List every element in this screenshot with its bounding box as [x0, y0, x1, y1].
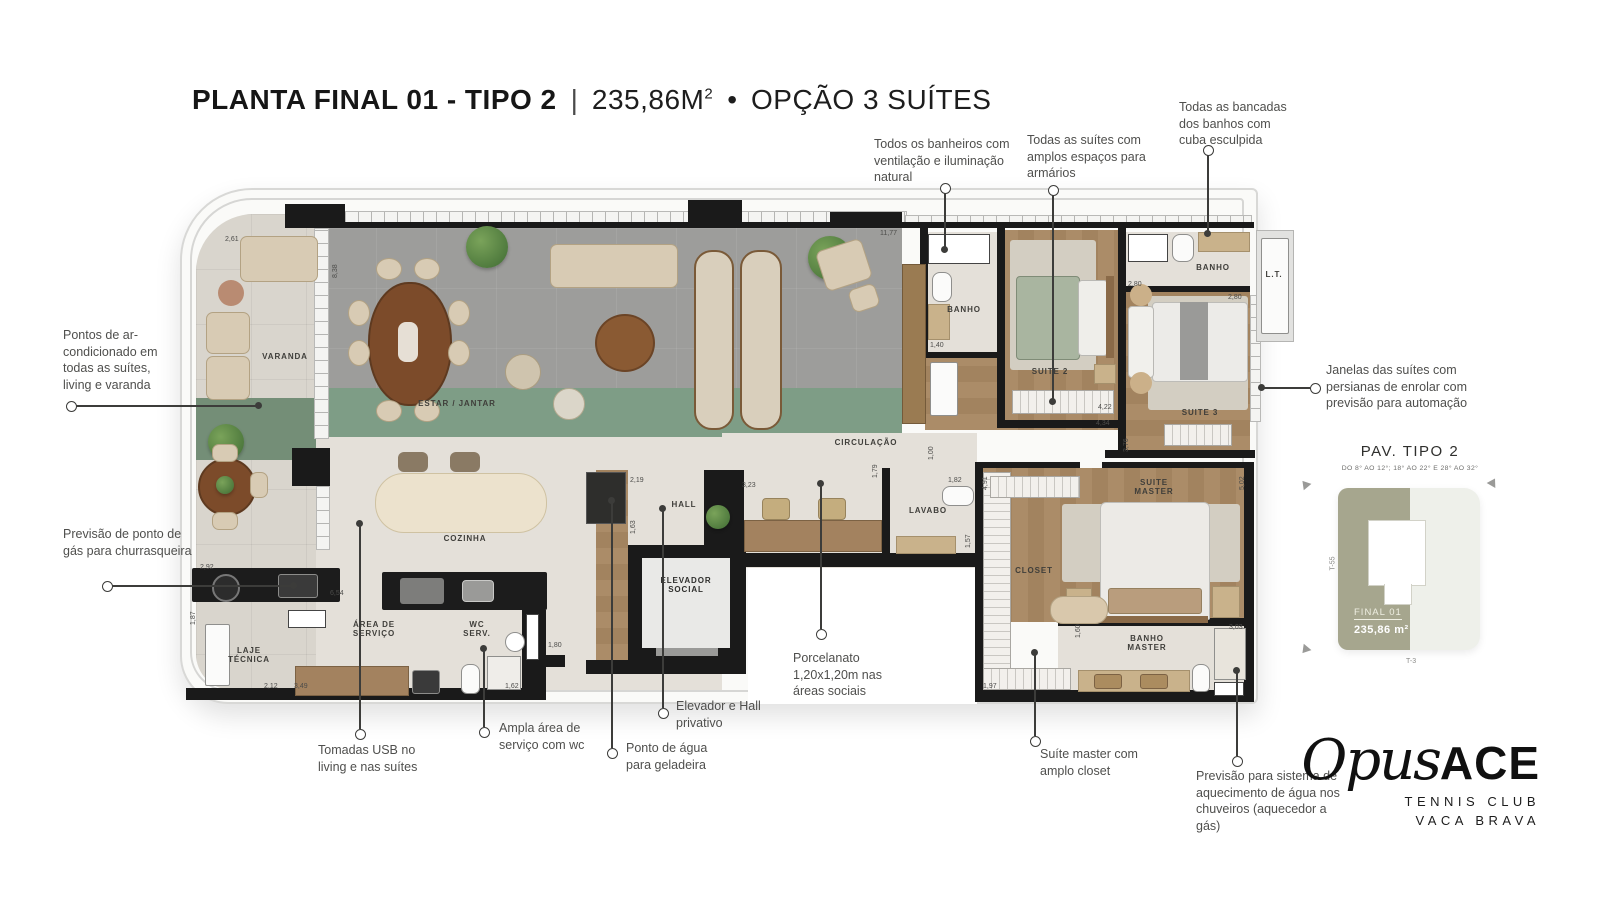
hall-plant	[706, 505, 730, 529]
living-round-table	[595, 314, 655, 372]
lavabo-counter	[896, 536, 956, 554]
corridor-bottom-wall	[744, 553, 977, 567]
leader-master	[1034, 652, 1036, 736]
leader-aquecimento-circle	[1232, 756, 1243, 767]
title-main: PLANTA FINAL 01 - TIPO 2	[192, 84, 557, 116]
living-pouf-1	[505, 354, 541, 390]
logo-opus: Opus	[1301, 728, 1440, 793]
top-wall	[316, 222, 1254, 228]
varanda-chair-n	[212, 444, 238, 462]
title-option: OPÇÃO 3 SUÍTES	[751, 84, 991, 116]
leader-suites-circle	[1048, 185, 1059, 196]
varanda-table-plant	[216, 476, 234, 494]
dimension-label: 1,63	[630, 520, 637, 534]
master-top-wall-a	[978, 462, 1080, 468]
banho-master-shower	[1214, 628, 1246, 680]
keyplan-final: FINAL 01	[1354, 607, 1402, 620]
label-suite2: SUITE 2	[1032, 367, 1069, 376]
leader-porcelanato-circle	[816, 629, 827, 640]
wall-chunk-1	[285, 204, 345, 228]
island-stool-2	[450, 452, 480, 472]
keyplan-axis-bottom: T-3	[1406, 658, 1416, 665]
annotation-usb: Tomadas USB no living e nas suítes	[318, 742, 436, 775]
leader-aquecimento	[1236, 670, 1238, 756]
label-lt: L.T.	[1266, 270, 1283, 279]
dimension-label: 1,79	[872, 464, 879, 478]
annotation-servico-wc: Ampla área de serviço com wc	[499, 720, 611, 753]
suite2-headboard	[1106, 276, 1114, 358]
laje-window	[288, 610, 326, 628]
keyplan-area: 235,86 m²	[1354, 624, 1409, 636]
dining-chair-6	[448, 340, 470, 366]
dimension-label: 8,38	[332, 264, 339, 278]
annotation-bancadas: Todas as bancadas dos banhos com cuba es…	[1179, 99, 1297, 149]
console-basket-2	[818, 498, 846, 520]
keyplan-title: PAV. TIPO 2	[1335, 443, 1485, 460]
dimension-label: 1,87	[190, 611, 197, 625]
banho2-bottom-wall	[920, 352, 1004, 358]
fridge	[586, 472, 626, 524]
lt-cabinet	[1261, 238, 1289, 334]
master-pillows	[1108, 588, 1202, 614]
dimension-label: 2,80	[1228, 294, 1242, 301]
service-bench	[295, 666, 409, 696]
leader-usb-circle	[355, 729, 366, 740]
banho3-shower	[1128, 234, 1168, 262]
kitchen-sink	[462, 580, 494, 602]
wc-window	[526, 614, 539, 660]
dimension-label: 4,34	[1096, 420, 1110, 427]
leader-aquecimento-dot	[1233, 667, 1240, 674]
leader-master-dot	[1031, 649, 1038, 656]
suite3-bench	[1164, 424, 1232, 446]
dining-chair-7	[376, 400, 402, 422]
console-basket-1	[762, 498, 790, 520]
leader-usb-dot	[356, 520, 363, 527]
dining-table-flowers	[398, 322, 418, 362]
sofa-module-1	[694, 250, 734, 430]
leader-banheiros	[944, 192, 946, 249]
varanda-chair-s	[212, 512, 238, 530]
cooktop	[400, 578, 444, 604]
slab-nub	[545, 655, 565, 667]
wall-chunk-4	[292, 448, 330, 486]
title-dot: •	[727, 84, 737, 116]
dimension-label: 1,80	[548, 642, 562, 649]
brand-logo: OpusACE TENNIS CLUB VACA BRAVA	[1300, 728, 1540, 831]
leader-servico-circle	[479, 727, 490, 738]
dining-chair-2	[414, 258, 440, 280]
banho-master-toilet	[1192, 664, 1210, 692]
leader-gas-dot	[290, 582, 297, 589]
label-estar-jantar: ESTAR / JANTAR	[418, 399, 496, 408]
leader-gas-circle	[102, 581, 113, 592]
leader-ac-circle	[66, 401, 77, 412]
leader-elevador-circle	[658, 708, 669, 719]
sofa-module-2	[740, 250, 782, 430]
leader-elevador	[662, 508, 664, 708]
logo-wordmark: OpusACE	[1300, 728, 1540, 793]
master-nightstand-2	[1212, 586, 1240, 618]
kitchen-island	[375, 473, 547, 533]
wall-chunk-2	[688, 200, 742, 228]
dimension-label: 3,49	[294, 683, 308, 690]
dimension-label: 1,97	[983, 683, 997, 690]
master-top-wall-b	[1102, 462, 1252, 468]
island-stool-1	[398, 452, 428, 472]
varanda-chair-e	[250, 472, 268, 498]
suite3-pouf-2	[1130, 372, 1152, 394]
dimension-label: 2,19	[630, 477, 644, 484]
varanda-armchair-2	[206, 356, 250, 400]
leader-elevador-dot	[659, 505, 666, 512]
dimension-label: 2,92	[200, 564, 214, 571]
living-pouf-2	[553, 388, 585, 420]
logo-vaca-brava: VACA BRAVA	[1416, 813, 1540, 828]
label-banho-suite2: BANHO	[947, 305, 981, 314]
keyplan-compass-icon	[1299, 478, 1312, 491]
dimension-label: 2,80	[1128, 281, 1142, 288]
dimension-label: 1,82	[948, 477, 962, 484]
leader-bancadas-dot	[1204, 230, 1211, 237]
annotation-porcelanato: Porcelanato 1,20x1,20m nas áreas sociais	[793, 650, 909, 700]
varanda-kitchen-window	[316, 486, 330, 550]
dimension-label: 4,91	[982, 476, 989, 490]
elevator-cab	[642, 558, 730, 648]
lavabo-toilet	[942, 486, 974, 506]
dining-chair-1	[376, 258, 402, 280]
keyplan-subtitle: DO 8° AO 12°; 18° AO 22° E 28° AO 32°	[1305, 465, 1515, 472]
label-banho-master: BANHO MASTER	[1122, 634, 1172, 652]
varanda-armchair-1	[206, 312, 250, 354]
banho-master-sink-2	[1140, 674, 1168, 689]
label-banho-suite3: BANHO	[1196, 263, 1230, 272]
keyplan-axis-left: T-55	[1330, 556, 1337, 570]
living-plant-1	[466, 226, 508, 268]
leader-servico-dot	[480, 645, 487, 652]
laundry-appliances	[930, 362, 958, 416]
suite2-pillows	[1078, 280, 1108, 356]
leader-porcelanato-dot	[817, 480, 824, 487]
label-laje-tecnica: LAJE TÉCNICA	[221, 646, 277, 664]
leader-janelas-circle	[1310, 383, 1321, 394]
elevator-door	[656, 648, 718, 656]
suite2-duvet	[1016, 276, 1080, 360]
wc-basin	[505, 632, 525, 652]
closet-wardrobe-top	[990, 476, 1080, 498]
dining-chair-4	[348, 340, 370, 366]
banho-master-sink-1	[1094, 674, 1122, 689]
dimension-label: 3,76	[1123, 438, 1130, 452]
banho-master-window	[1214, 682, 1244, 696]
master-headboard	[1100, 616, 1208, 623]
dimension-label: 5,02	[1239, 476, 1246, 490]
logo-tennis-club: TENNIS CLUB	[1405, 794, 1540, 809]
leader-ac-dot	[255, 402, 262, 409]
leader-bancadas	[1207, 154, 1209, 233]
dimension-label: 1,60	[1075, 624, 1082, 638]
corridor-console	[744, 520, 882, 552]
label-hall: HALL	[672, 500, 697, 509]
leader-agua	[611, 500, 613, 748]
leader-porcelanato	[820, 483, 822, 629]
leader-janelas-dot	[1258, 384, 1265, 391]
banho2-toilet	[932, 272, 952, 302]
dimension-label: 1,40	[930, 342, 944, 349]
label-area-servico: ÁREA DE SERVIÇO	[344, 620, 404, 638]
annotation-ac: Pontos de ar-condicionado em todas as su…	[63, 327, 175, 393]
logo-ace: ACE	[1440, 736, 1540, 790]
keyplan-unit-label: FINAL 01 235,86 m²	[1354, 602, 1409, 638]
title-area: 235,86M2	[592, 84, 713, 116]
dimension-label: 1,57	[965, 534, 972, 548]
annotation-gas: Previsão de ponto de gás para churrasque…	[63, 526, 193, 559]
annotation-banheiros: Todos os banheiros com ventilação e ilum…	[874, 136, 1034, 186]
label-circulacao: CIRCULAÇÃO	[835, 438, 898, 447]
wc-toilet	[461, 664, 480, 694]
dimension-label: 3,03	[1229, 624, 1243, 631]
master-left-wall	[975, 462, 983, 702]
living-buffet	[902, 264, 926, 424]
leader-servico	[483, 648, 485, 727]
leader-suites-dot	[1049, 398, 1056, 405]
service-tub	[412, 670, 440, 694]
annotation-suites-armarios: Todas as suítes com amplos espaços para …	[1027, 132, 1157, 182]
label-suite-master: SUITE MASTER	[1127, 478, 1181, 496]
leader-gas	[110, 585, 293, 587]
elevator-wing-bottom-wall	[586, 660, 746, 674]
keyplan-core	[1368, 520, 1426, 586]
dimension-label: 2,12	[264, 683, 278, 690]
keyplan-marker-icon	[1487, 476, 1500, 488]
suite2-left-wall	[997, 228, 1005, 428]
leader-ac	[74, 405, 258, 407]
label-varanda: VARANDA	[262, 352, 308, 361]
dining-chair-3	[348, 300, 370, 326]
banho3-toilet	[1172, 234, 1194, 262]
suite2-nightstand	[1094, 364, 1116, 384]
suite3-pillows	[1128, 306, 1154, 378]
annotation-janelas: Janelas das suítes com persianas de enro…	[1326, 362, 1484, 412]
label-lavabo: LAVABO	[909, 506, 947, 515]
title-separator: |	[571, 84, 578, 116]
grill	[212, 574, 240, 602]
dimension-label: 1,00	[928, 446, 935, 460]
varanda-side-table	[218, 280, 244, 306]
page-title: PLANTA FINAL 01 - TIPO 2 | 235,86M2 • OP…	[192, 84, 991, 116]
varanda-sofa	[240, 236, 318, 282]
leader-janelas	[1262, 387, 1310, 389]
floorplan-page: { "title": { "main": "PLANTA FINAL 01 - …	[0, 0, 1600, 900]
dimension-label: 11,77	[880, 230, 897, 237]
leader-banheiros-dot	[941, 246, 948, 253]
annotation-suite-master: Suíte master com amplo closet	[1040, 746, 1168, 779]
annotation-agua-geladeira: Ponto de água para geladeira	[626, 740, 726, 773]
lavabo-left-wall	[882, 468, 890, 558]
label-closet: CLOSET	[1015, 566, 1053, 575]
closet-wardrobe-left	[983, 472, 1011, 672]
leader-agua-dot	[608, 497, 615, 504]
label-cozinha: COZINHA	[444, 534, 487, 543]
suite3-throw	[1180, 302, 1208, 380]
logo-subtitle: TENNIS CLUB VACA BRAVA	[1300, 793, 1540, 831]
label-suite3: SUITE 3	[1182, 408, 1219, 417]
dimension-label: 6,54	[330, 590, 344, 597]
dimension-label: 4,22	[1098, 404, 1112, 411]
label-wc-serv: WC SERV.	[460, 620, 494, 638]
leader-usb	[359, 523, 361, 729]
living-bench-sofa	[550, 244, 678, 288]
dimension-label: 2,61	[225, 236, 239, 243]
dining-chair-5	[448, 300, 470, 326]
leader-suites	[1052, 194, 1054, 401]
annotation-elevador-hall: Elevador e Hall privativo	[676, 698, 786, 731]
dimension-label: 3,23	[742, 482, 756, 489]
label-elevador-social: ELEVADOR SOCIAL	[654, 576, 718, 594]
closet-vanity	[1050, 596, 1108, 624]
wall-chunk-3	[830, 212, 902, 228]
banho2-shower	[928, 234, 990, 264]
keyplan-marker-icon-2	[1299, 644, 1312, 657]
dimension-label: 1,62	[505, 683, 519, 690]
